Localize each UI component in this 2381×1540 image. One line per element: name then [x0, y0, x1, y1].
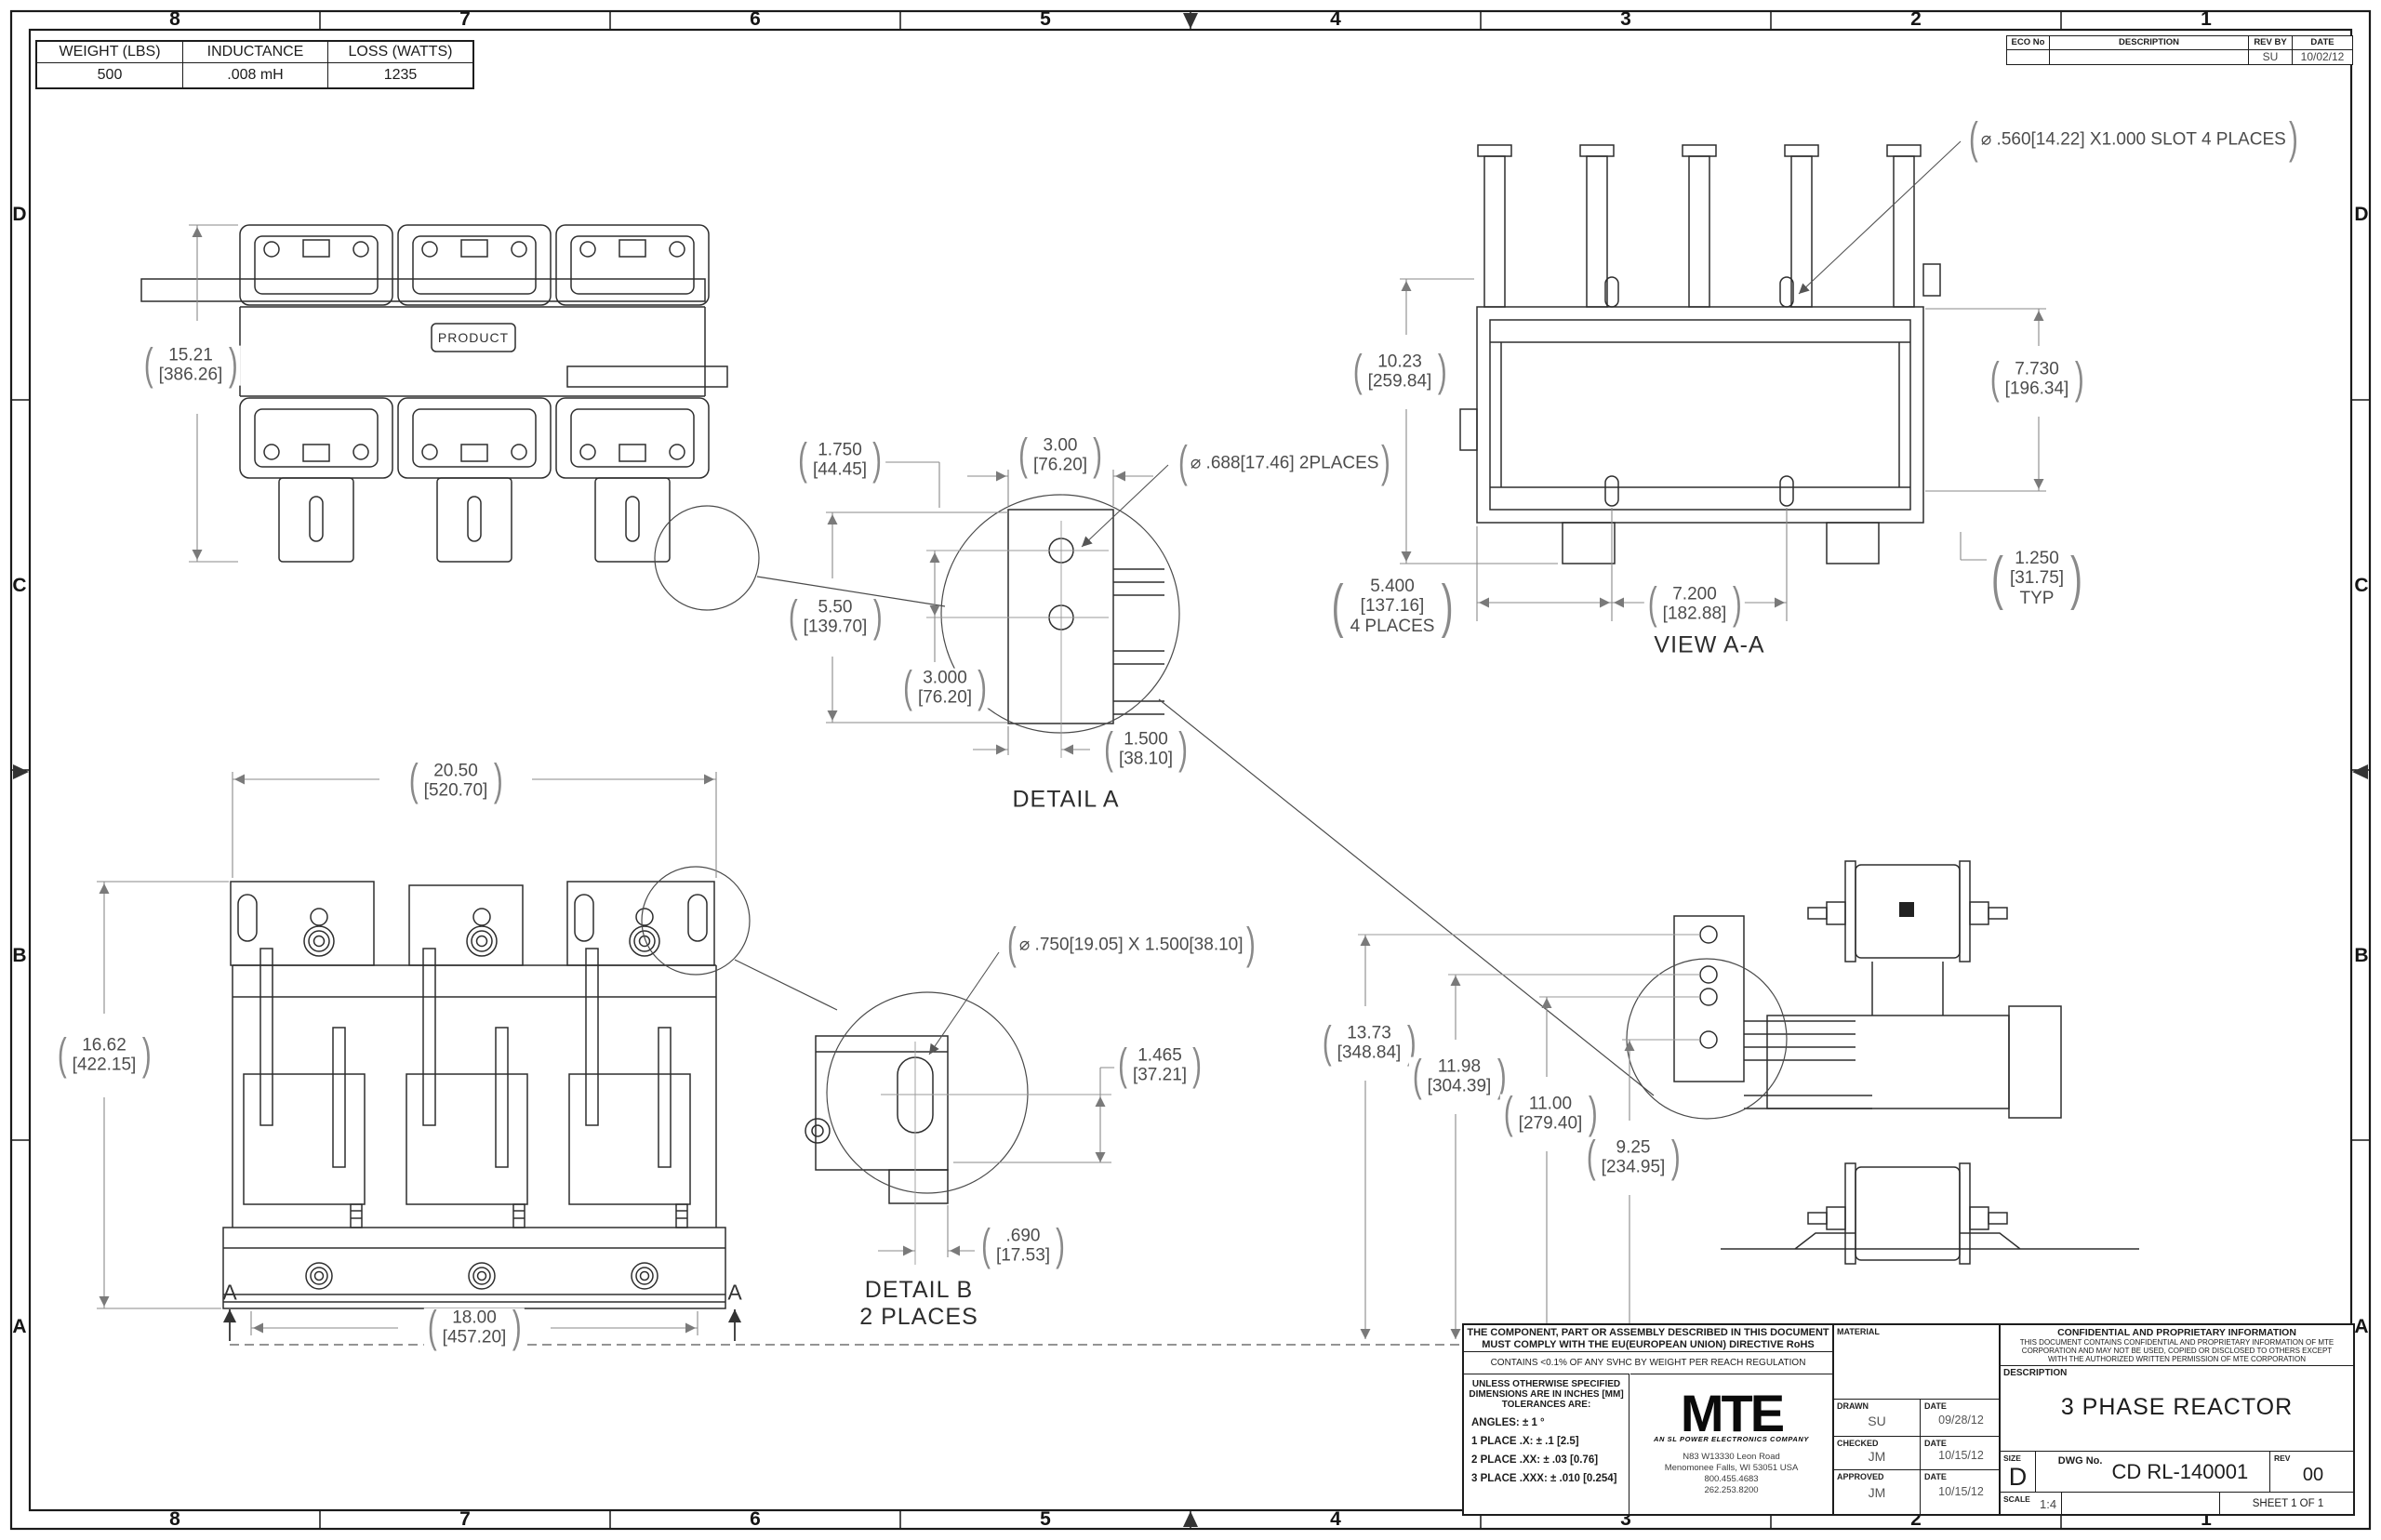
dim-detail-a-pitch: ( 3.000[76.20] ) [899, 669, 991, 709]
dim-in: 3.000 [923, 669, 967, 688]
dim-side-h4: ( 9.25[234.95] ) [1583, 1138, 1683, 1178]
paren-left: ( [798, 441, 807, 481]
zone-col-top-7: 7 [459, 8, 471, 31]
approved-date-label: DATE [1924, 1472, 1947, 1481]
zone-col-bot-4: 4 [1330, 1508, 1341, 1531]
dim-side-h3: ( 11.00[279.40] ) [1500, 1095, 1601, 1135]
callout-text: ⌀ .560[14.22] X1.000 SLOT 4 PLACES [1981, 129, 2286, 151]
dim-in: 1.750 [818, 441, 862, 460]
sheet-frame [11, 11, 2370, 1529]
dwg-no-value: CD RL-140001 [2111, 1460, 2248, 1484]
dim-in: 20.50 [433, 762, 478, 781]
paren-right: ) [512, 1308, 521, 1348]
zone-col-top-3: 3 [1620, 8, 1631, 31]
dim-note: 4 PLACES [1350, 617, 1435, 636]
dim-mm: [76.20] [1033, 456, 1087, 475]
compliance-statement: THE COMPONENT, PART OR ASSEMBLY DESCRIBE… [1464, 1325, 1832, 1351]
scale-cell: SCALE 1:4 [2001, 1493, 2062, 1515]
paren-right: ) [141, 1036, 151, 1076]
approved-row: APPROVED JM DATE 10/15/12 [1832, 1469, 1999, 1514]
checked-label: CHECKED [1837, 1439, 1879, 1448]
checked-by: JM [1834, 1449, 1920, 1464]
paren-left: ( [1587, 1138, 1596, 1178]
dim-mm: [259.84] [1368, 372, 1432, 392]
dim-in: 11.00 [1529, 1095, 1572, 1114]
paren-left: ( [1648, 585, 1657, 625]
dim-detail-a-offset-bottom: ( 1.500[38.10] ) [1100, 730, 1191, 770]
paren-left: ( [981, 1227, 991, 1267]
dim-mm: [234.95] [1602, 1158, 1666, 1177]
paren-right: ) [493, 762, 502, 802]
scale-value: 1:4 [2040, 1497, 2056, 1511]
address-line2: Menomonee Falls, WI 53051 USA [1665, 1463, 1799, 1474]
drawn-date-label: DATE [1924, 1401, 1947, 1411]
dim-mm: [520.70] [424, 781, 488, 801]
dim-aa-pitch: ( 7.200[182.88] ) [1644, 585, 1745, 625]
paren-left: ( [1332, 580, 1344, 632]
paren-left: ( [144, 346, 153, 386]
zone-row-left-a: A [12, 1316, 26, 1338]
rev-value: 00 [2271, 1465, 2355, 1486]
confidential-line3: WITH THE AUTHORIZED WRITTEN PERMISSION O… [2001, 1355, 2353, 1363]
dim-mm: [196.34] [2005, 379, 2069, 399]
spec-value-inductance: .008 mH [183, 63, 328, 87]
paren-right: ) [2289, 120, 2298, 160]
paren-right: ) [1381, 444, 1390, 484]
description-cell: DESCRIPTION 3 PHASE REACTOR [1999, 1365, 2353, 1451]
dim-mm: [38.10] [1119, 750, 1173, 769]
mte-tagline: AN SL POWER ELECTRONICS COMPANY [1654, 1435, 1809, 1443]
dim-in: 1.465 [1137, 1046, 1182, 1066]
checked-cell: CHECKED JM [1834, 1437, 1921, 1470]
paren-right: ) [1246, 925, 1256, 965]
paren-right: ) [2074, 360, 2083, 400]
address-line3: 800.455.4683 [1665, 1474, 1799, 1485]
drawn-by: SU [1834, 1414, 1920, 1428]
dim-side-h1: ( 13.73[348.84] ) [1319, 1024, 1419, 1064]
detail-b-label: DETAIL B 2 PLACES [859, 1277, 978, 1331]
eco-value-revby: SU [2249, 50, 2293, 64]
checked-row: CHECKED JM DATE 10/15/12 [1832, 1436, 1999, 1469]
zone-col-top-4: 4 [1330, 8, 1341, 31]
spec-header-weight: WEIGHT (LBS) [37, 42, 183, 63]
dim-in: 7.730 [2015, 360, 2059, 379]
eco-header-date: DATE [2293, 36, 2352, 50]
material-label: MATERIAL [1837, 1327, 1880, 1336]
tolerance-2place: 2 PLACE .XX: ± .03 [0.76] [1464, 1454, 1629, 1466]
checked-date: 10/15/12 [1922, 1449, 2001, 1462]
zone-col-bot-5: 5 [1040, 1508, 1051, 1531]
centerlines [881, 521, 1700, 1265]
spec-header-inductance: INDUCTANCE [183, 42, 328, 63]
dim-in: 11.98 [1438, 1057, 1481, 1077]
callout-text: ⌀ .688[17.46] 2PLACES [1190, 453, 1379, 474]
callout-detail-a-hole: ( ⌀ .688[17.46] 2PLACES ) [1174, 444, 1395, 484]
dim-in: 9.25 [1616, 1138, 1651, 1158]
dimension-arrows [104, 227, 2039, 1339]
top-view-linework [141, 225, 727, 562]
zone-row-left-d: D [12, 204, 26, 226]
dim-in: 1.250 [2015, 549, 2059, 568]
dim-detail-a-offset-top: ( 1.750[44.45] ) [794, 441, 885, 481]
scale-sheet-row: SCALE 1:4 SHEET 1 OF 1 [1999, 1492, 2353, 1514]
zone-row-right-d: D [2354, 204, 2368, 226]
dimension-lines [97, 225, 2046, 1339]
size-value: D [2001, 1463, 2035, 1492]
dwg-no-label: DWG No. [2058, 1455, 2103, 1467]
dim-mm: [76.20] [918, 688, 972, 708]
dim-in: 5.400 [1370, 577, 1415, 596]
dim-front-height: ( 16.62[422.15] ) [54, 1036, 154, 1076]
paren-right: ) [1056, 1227, 1065, 1267]
approved-cell: APPROVED JM [1834, 1470, 1921, 1515]
zone-col-bot-8: 8 [169, 1508, 180, 1531]
spec-value-weight: 500 [37, 63, 183, 87]
tolerance-angles: ANGLES: ± 1 ° [1464, 1417, 1629, 1428]
dim-mm: [422.15] [73, 1055, 137, 1075]
eco-value-date: 10/02/12 [2293, 50, 2352, 64]
paren-right: ) [1178, 730, 1188, 770]
material-cell: MATERIAL [1832, 1325, 1999, 1399]
drawn-label: DRAWN [1837, 1401, 1869, 1411]
paren-left: ( [789, 598, 798, 638]
tolerance-block: UNLESS OTHERWISE SPECIFIED DIMENSIONS AR… [1464, 1374, 1629, 1514]
approved-label: APPROVED [1837, 1472, 1884, 1481]
dim-in: 5.50 [818, 598, 853, 617]
front-view-linework [223, 882, 725, 1308]
dim-mm: [348.84] [1337, 1043, 1402, 1063]
detail-b-title: DETAIL B [859, 1277, 978, 1304]
view-aa-label: VIEW A-A [1654, 632, 1764, 659]
paren-right: ) [872, 441, 882, 481]
logo-block: MTE AN SL POWER ELECTRONICS COMPANY N83 … [1630, 1374, 1832, 1514]
view-aa-linework [1460, 145, 1940, 564]
frame-center-arrows [13, 13, 2368, 1527]
tolerance-header3: TOLERANCES ARE: [1464, 1400, 1629, 1410]
drawn-date-cell: DATE 09/28/12 [1922, 1400, 2001, 1437]
tolerance-header2: DIMENSIONS ARE IN INCHES [MM] [1464, 1389, 1629, 1400]
paren-left: ( [409, 762, 419, 802]
paren-left: ( [1323, 1024, 1332, 1064]
paren-left: ( [58, 1036, 67, 1076]
tolerance-3place: 3 PLACE .XXX: ± .010 [0.254] [1464, 1473, 1629, 1484]
callout-aa-slot: ( ⌀ .560[14.22] X1.000 SLOT 4 PLACES ) [1964, 120, 2303, 160]
dim-mm: [31.75] [2010, 568, 2064, 588]
dim-mm: [304.39] [1428, 1077, 1492, 1096]
eco-header-no: ECO No [2007, 36, 2050, 50]
dim-front-mounting: ( 18.00[457.20] ) [424, 1308, 525, 1348]
eco-header-description: DESCRIPTION [2050, 36, 2249, 50]
drawing-linework [0, 0, 2381, 1540]
dim-mm: [139.70] [804, 617, 868, 637]
compliance-line1: THE COMPONENT, PART OR ASSEMBLY DESCRIBE… [1464, 1327, 1832, 1339]
side-view-linework [1674, 861, 2139, 1264]
dim-mm: [182.88] [1663, 604, 1727, 624]
mte-logo: MTE [1681, 1392, 1782, 1435]
drawn-cell: DRAWN SU [1834, 1400, 1921, 1437]
paren-left: ( [1018, 436, 1028, 476]
eco-header-revby: REV BY [2249, 36, 2293, 50]
detail-b-note: 2 PLACES [859, 1304, 978, 1331]
rev-label: REV [2274, 1454, 2290, 1463]
zone-row-left-b: B [12, 945, 26, 967]
paren-right: ) [1588, 1095, 1597, 1135]
zone-col-bot-6: 6 [750, 1508, 761, 1531]
paren-right: ) [872, 598, 882, 638]
confidential-title: CONFIDENTIAL AND PROPRIETARY INFORMATION [2001, 1327, 2353, 1338]
eco-value-no [2007, 50, 2050, 64]
dim-aa-edge: ( 1.250[31.75]TYP ) [1987, 549, 2087, 608]
paren-left: ( [1969, 120, 1978, 160]
paren-right: ) [1437, 352, 1446, 392]
dim-mm: [37.21] [1133, 1066, 1187, 1085]
scale-spacer-cell [2063, 1493, 2220, 1515]
dim-mm: [17.53] [996, 1246, 1050, 1266]
zone-col-top-8: 8 [169, 8, 180, 31]
size-label: SIZE [2003, 1454, 2021, 1463]
dim-in: .690 [1006, 1227, 1041, 1246]
product-label: PRODUCT [438, 330, 509, 345]
zone-col-bot-7: 7 [459, 1508, 471, 1531]
detail-a-label: DETAIL A [1013, 787, 1120, 814]
dim-in: 16.62 [82, 1036, 126, 1055]
zone-col-top-5: 5 [1040, 8, 1051, 31]
tolerance-header1: UNLESS OTHERWISE SPECIFIED [1464, 1379, 1629, 1389]
compliance-line2: MUST COMPLY WITH THE EU(EUROPEAN UNION) … [1464, 1339, 1832, 1351]
dim-note: TYP [2020, 589, 2055, 608]
zone-row-left-c: C [12, 575, 26, 597]
zone-col-top-6: 6 [750, 8, 761, 31]
dim-in: 10.23 [1377, 352, 1422, 372]
dim-detail-a-height: ( 5.50[139.70] ) [785, 598, 885, 638]
zone-row-right-b: B [2354, 945, 2368, 967]
zone-col-top-2: 2 [1910, 8, 1922, 31]
dim-detail-b-height: ( 1.465[37.21] ) [1114, 1046, 1205, 1086]
detail-a-linework [1008, 510, 1164, 724]
dwg-no-cell: DWG No. CD RL-140001 [2037, 1452, 2270, 1493]
dim-in: 13.73 [1347, 1024, 1391, 1043]
dim-mm: [457.20] [443, 1328, 507, 1347]
dim-aa-height: ( 10.23[259.84] ) [1350, 352, 1450, 392]
approved-date-cell: DATE 10/15/12 [1922, 1470, 2001, 1515]
paren-right: ) [2070, 552, 2082, 604]
dim-mm: [386.26] [159, 365, 223, 385]
spec-table: WEIGHT (LBS) INDUCTANCE LOSS (WATTS) 500… [35, 40, 474, 89]
paren-left: ( [1118, 1046, 1127, 1086]
paren-right: ) [228, 346, 237, 386]
paren-left: ( [1413, 1057, 1422, 1097]
dim-mm: [279.40] [1519, 1114, 1583, 1134]
confidential-line2: CORPORATION AND MAY NOT BE USED, COPIED … [2001, 1347, 2353, 1355]
sheet-cell: SHEET 1 OF 1 [2221, 1493, 2355, 1515]
zone-row-right-c: C [2354, 575, 2368, 597]
spec-value-loss: 1235 [328, 63, 472, 87]
dim-side-h2: ( 11.98[304.39] ) [1409, 1057, 1510, 1097]
paren-left: ( [1991, 552, 2003, 604]
section-letter-left: A [222, 1281, 236, 1306]
dim-in: 7.200 [1672, 585, 1717, 604]
approved-date: 10/15/12 [1922, 1485, 2001, 1498]
dim-in: 3.00 [1044, 436, 1078, 456]
dim-mm: [44.45] [813, 460, 867, 480]
description-label: DESCRIPTION [2003, 1368, 2067, 1378]
paren-left: ( [1353, 352, 1363, 392]
title-block: THE COMPONENT, PART OR ASSEMBLY DESCRIBE… [1462, 1323, 2355, 1516]
paren-right: ) [978, 669, 987, 709]
scale-label: SCALE [2003, 1494, 2030, 1504]
side-view-nameplate [1899, 902, 1914, 917]
drawing-sheet: 8 7 6 5 4 3 2 1 8 7 6 5 4 3 2 1 D C B A … [0, 0, 2381, 1540]
paren-right: ) [1732, 585, 1741, 625]
address-line1: N83 W13330 Leon Road [1665, 1452, 1799, 1463]
dim-top-height: ( 15.21[386.26] ) [140, 346, 241, 386]
paren-left: ( [1504, 1095, 1513, 1135]
paren-left: ( [1104, 730, 1113, 770]
zone-col-top-1: 1 [2201, 8, 2212, 31]
zone-row-right-a: A [2354, 1316, 2368, 1338]
spec-header-loss: LOSS (WATTS) [328, 42, 472, 63]
confidential-line1: THIS DOCUMENT CONTAINS CONFIDENTIAL AND … [2001, 1338, 2353, 1347]
size-cell: SIZE D [2001, 1452, 2036, 1493]
dim-front-width: ( 20.50[520.70] ) [406, 762, 506, 802]
dwg-row: SIZE D DWG No. CD RL-140001 REV 00 [1999, 1451, 2353, 1492]
dim-mm: [137.16] [1361, 596, 1425, 616]
dim-detail-a-width-top: ( 3.00[76.20] ) [1015, 436, 1106, 476]
description-value: 3 PHASE REACTOR [2001, 1394, 2353, 1421]
dim-in: 18.00 [452, 1308, 497, 1328]
paren-right: ) [1093, 436, 1102, 476]
callout-text: ⌀ .750[19.05] X 1.500[38.10] [1019, 935, 1244, 956]
paren-right: ) [1670, 1138, 1680, 1178]
checked-date-cell: DATE 10/15/12 [1922, 1437, 2001, 1470]
approved-by: JM [1834, 1485, 1920, 1500]
eco-value-description [2050, 50, 2249, 64]
callout-detail-b-slot: ( ⌀ .750[19.05] X 1.500[38.10] ) [1003, 925, 1259, 965]
detail-b-linework [805, 1036, 948, 1203]
dim-aa-spacing: ( 5.400[137.16]4 PLACES ) [1327, 577, 1458, 636]
paren-right: ) [1441, 580, 1453, 632]
paren-left: ( [428, 1308, 437, 1348]
dim-aa-width: ( 7.730[196.34] ) [1987, 360, 2087, 400]
drawn-row: DRAWN SU DATE 09/28/12 [1832, 1399, 1999, 1436]
dim-detail-b-width: ( .690[17.53] ) [978, 1227, 1069, 1267]
confidential-block: CONFIDENTIAL AND PROPRIETARY INFORMATION… [1999, 1325, 2353, 1365]
eco-table: ECO No DESCRIPTION REV BY DATE SU 10/02/… [2006, 35, 2353, 65]
drawn-date: 09/28/12 [1922, 1414, 2001, 1427]
paren-left: ( [903, 669, 912, 709]
paren-left: ( [1990, 360, 2000, 400]
tolerance-1place: 1 PLACE .X: ± .1 [2.5] [1464, 1436, 1629, 1447]
checked-date-label: DATE [1924, 1439, 1947, 1448]
paren-left: ( [1007, 925, 1017, 965]
address-line4: 262.253.8200 [1665, 1485, 1799, 1496]
section-letter-right: A [727, 1281, 741, 1306]
company-address: N83 W13330 Leon Road Menomonee Falls, WI… [1665, 1452, 1799, 1496]
paren-left: ( [1178, 444, 1188, 484]
dim-in: 15.21 [168, 346, 213, 365]
reach-statement: CONTAINS <0.1% OF ANY SVHC BY WEIGHT PER… [1464, 1351, 1832, 1374]
paren-right: ) [1192, 1046, 1202, 1086]
dim-in: 1.500 [1124, 730, 1168, 750]
rev-cell: REV 00 [2271, 1452, 2355, 1493]
